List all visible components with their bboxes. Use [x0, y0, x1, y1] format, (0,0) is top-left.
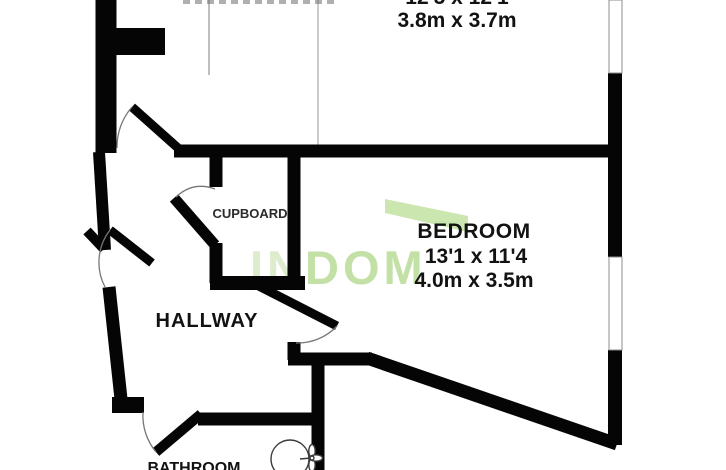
door-arc — [143, 412, 156, 452]
window — [609, 0, 622, 73]
door-arc — [296, 326, 337, 343]
wall — [367, 358, 617, 444]
bedroom-dims-imperial: 13'1 x 11'4 — [425, 246, 527, 269]
wall — [99, 152, 105, 250]
door-arc — [176, 186, 215, 197]
bedroom-dims-metric: 4.0m x 3.5m — [414, 270, 533, 293]
bathroom-label: BATHROOM — [147, 460, 240, 470]
toilet-detail — [310, 456, 314, 460]
floorplan-canvas: INDOM — [0, 0, 726, 470]
door-leaf — [156, 414, 201, 452]
wall — [174, 198, 215, 245]
wall — [98, 144, 116, 153]
door-arc — [117, 107, 132, 148]
cutoff-room-label-remnant — [183, 0, 339, 4]
floorplan-drawing — [0, 0, 726, 470]
reception-dims-metric: 3.8m x 3.7m — [397, 10, 516, 33]
hallway-label: HALLWAY — [156, 311, 259, 333]
thin-partitions — [209, 0, 318, 146]
wall — [100, 28, 165, 55]
toilet-bowl — [271, 440, 309, 470]
cupboard-label: CUPBOARD — [212, 207, 287, 221]
door-leaf — [110, 230, 152, 263]
window — [609, 257, 622, 350]
walls — [87, 0, 622, 470]
wall — [109, 287, 121, 399]
door-leaf — [132, 107, 178, 148]
bedroom-label: BEDROOM — [417, 221, 530, 244]
